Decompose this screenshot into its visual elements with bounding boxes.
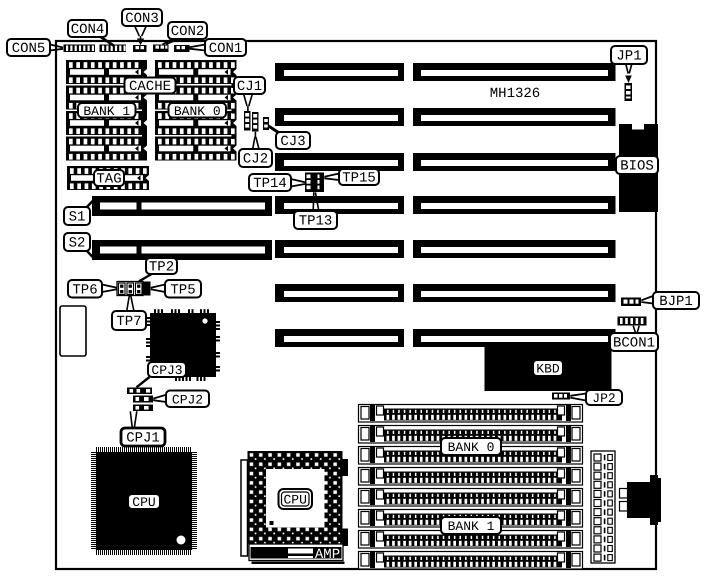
svg-text:JP1: JP1 bbox=[616, 49, 641, 65]
svg-text:CJ1: CJ1 bbox=[237, 79, 262, 95]
svg-text:CPJ1: CPJ1 bbox=[126, 431, 160, 447]
svg-text:CACHE: CACHE bbox=[129, 79, 171, 95]
svg-text:CJ2: CJ2 bbox=[243, 152, 268, 168]
svg-text:CPU: CPU bbox=[283, 493, 306, 508]
svg-text:BANK 1: BANK 1 bbox=[83, 104, 130, 119]
svg-text:S1: S1 bbox=[69, 210, 86, 226]
svg-text:S2: S2 bbox=[69, 236, 86, 252]
svg-text:CON3: CON3 bbox=[125, 11, 159, 27]
svg-text:TP7: TP7 bbox=[116, 314, 141, 330]
svg-text:BANK 0: BANK 0 bbox=[174, 104, 221, 119]
svg-text:TP13: TP13 bbox=[299, 214, 333, 230]
svg-text:CON2: CON2 bbox=[171, 24, 205, 40]
svg-text:BCON1: BCON1 bbox=[613, 336, 655, 352]
svg-text:TAG: TAG bbox=[96, 172, 121, 188]
svg-text:KBD: KBD bbox=[536, 362, 560, 377]
svg-text:CJ3: CJ3 bbox=[280, 134, 305, 150]
svg-text:BJP1: BJP1 bbox=[659, 294, 693, 310]
svg-text:AMP: AMP bbox=[315, 547, 340, 563]
svg-text:BANK 0: BANK 0 bbox=[448, 440, 495, 455]
svg-text:TP5: TP5 bbox=[170, 282, 195, 298]
svg-text:TP14: TP14 bbox=[253, 176, 287, 192]
svg-text:MH1326: MH1326 bbox=[490, 86, 540, 102]
svg-text:CON4: CON4 bbox=[71, 22, 105, 38]
svg-text:BIOS: BIOS bbox=[620, 159, 654, 175]
svg-text:CPJ2: CPJ2 bbox=[172, 392, 203, 407]
svg-text:TP15: TP15 bbox=[342, 171, 376, 187]
svg-text:JP2: JP2 bbox=[592, 391, 615, 406]
svg-text:CPU: CPU bbox=[132, 495, 155, 510]
svg-text:CPJ3: CPJ3 bbox=[151, 363, 182, 378]
svg-text:TP6: TP6 bbox=[72, 282, 97, 298]
svg-text:CON1: CON1 bbox=[209, 41, 243, 57]
svg-text:BANK 1: BANK 1 bbox=[448, 519, 495, 534]
svg-text:TP2: TP2 bbox=[149, 260, 174, 276]
svg-text:CON5: CON5 bbox=[12, 41, 46, 57]
